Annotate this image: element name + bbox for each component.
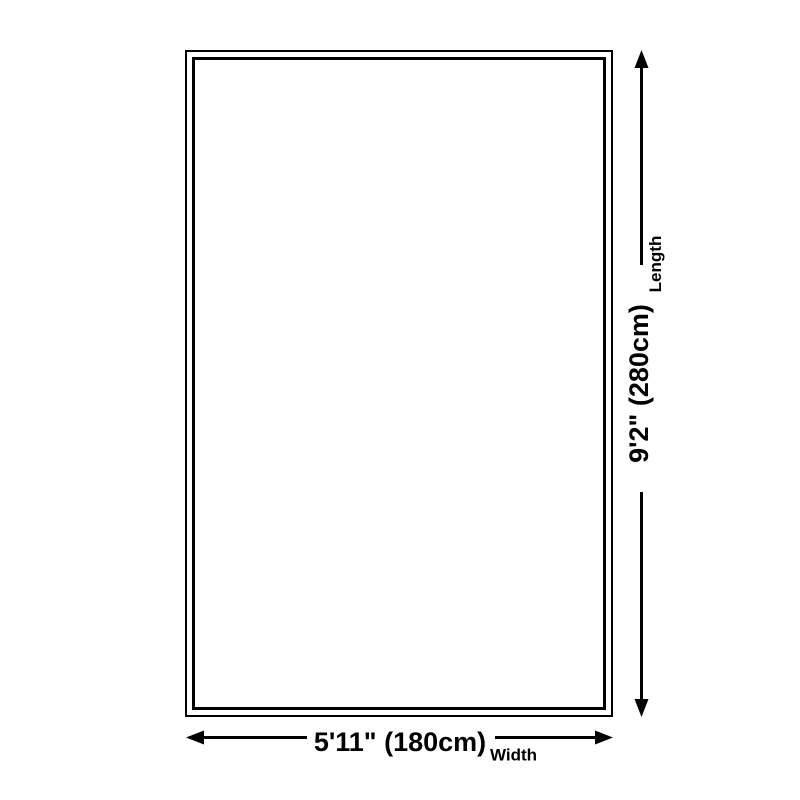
rug-dimension-diagram: 9'2" (280cm) Length 5'11" (180cm) Width [0, 0, 800, 800]
dimension-diagram-svg: 9'2" (280cm) Length 5'11" (180cm) Width [0, 0, 800, 800]
width-dimension: 5'11" (180cm) Width [186, 727, 613, 765]
rug-outline [186, 51, 612, 716]
rug-outer-border [186, 51, 612, 716]
length-dimension: 9'2" (280cm) Length [624, 50, 665, 717]
width-axis-label: Width [490, 746, 537, 765]
width-value-label: 5'11" (180cm) [314, 727, 486, 757]
arrowhead-down-icon [635, 699, 649, 717]
length-axis-label: Length [646, 236, 665, 293]
arrowhead-right-icon [595, 731, 613, 745]
length-value-label: 9'2" (280cm) [624, 304, 654, 463]
